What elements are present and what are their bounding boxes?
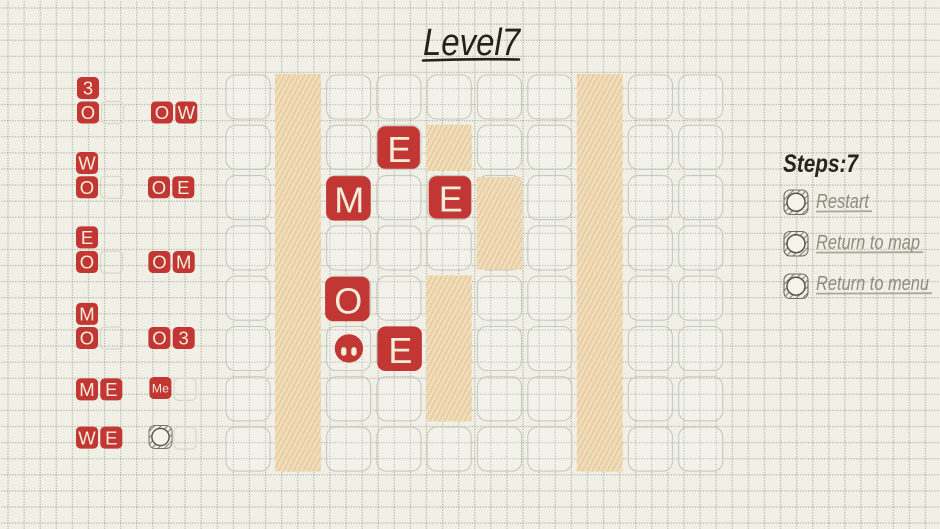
svg-text:O: O	[80, 328, 94, 349]
svg-text:O: O	[81, 102, 95, 123]
svg-text:W: W	[178, 102, 196, 123]
svg-text:E: E	[105, 379, 117, 400]
svg-text:Level7: Level7	[423, 22, 522, 64]
svg-text:3: 3	[83, 78, 93, 99]
svg-text:Restart: Restart	[816, 191, 870, 213]
svg-text:Me: Me	[152, 381, 169, 395]
svg-text:M: M	[79, 379, 94, 400]
svg-text:M: M	[176, 252, 191, 273]
svg-text:E: E	[177, 177, 189, 198]
svg-text:Return to map: Return to map	[816, 232, 920, 254]
svg-text:E: E	[388, 330, 412, 371]
svg-text:M: M	[334, 180, 364, 221]
svg-text:Steps:7: Steps:7	[783, 150, 859, 178]
svg-text:W: W	[78, 153, 96, 174]
svg-text:E: E	[439, 179, 463, 220]
svg-text:E: E	[387, 129, 411, 170]
svg-text:O: O	[80, 252, 94, 273]
svg-text:O: O	[152, 252, 166, 273]
svg-text:E: E	[81, 227, 93, 248]
svg-text:O: O	[152, 177, 166, 198]
svg-text:3: 3	[179, 328, 189, 349]
svg-text:W: W	[78, 427, 96, 448]
svg-text:O: O	[152, 328, 166, 349]
svg-text:Return to menu: Return to menu	[816, 273, 929, 295]
svg-text:M: M	[79, 304, 94, 325]
svg-text:E: E	[105, 427, 117, 448]
svg-text:O: O	[80, 177, 94, 198]
svg-text:O: O	[334, 280, 362, 321]
svg-text:O: O	[155, 102, 169, 123]
